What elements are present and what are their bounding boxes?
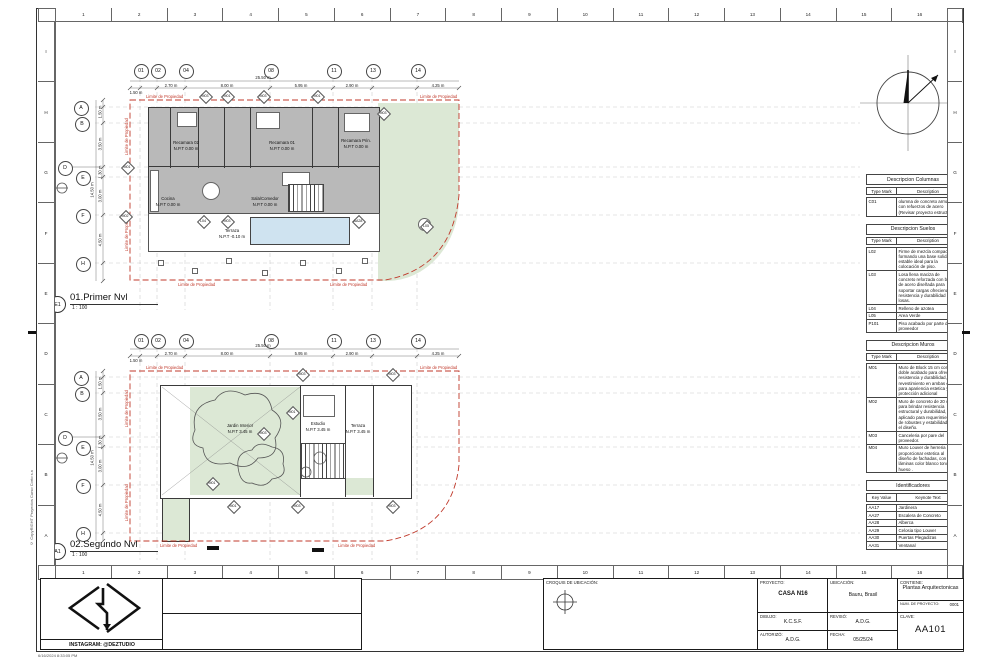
plan1-view-title: E1 01.Primer Nvl 1 : 100 <box>49 292 158 311</box>
ruler-cell: A <box>948 505 962 565</box>
grid-bubble: D <box>58 431 73 446</box>
dim-label: 8.00 m <box>221 351 234 356</box>
ruler-cell: 16 <box>891 8 947 21</box>
room-name: Recamara 02 <box>173 140 199 146</box>
grid-bubble: 13 <box>366 64 381 79</box>
contiene-box: CONTIENE: Plantas Arquitectonicas <box>897 578 964 602</box>
keynote-diamond: L04 <box>197 215 209 227</box>
dim-label: 3.00 m <box>98 190 103 203</box>
table-suelos: Descripcion Suelos Type MarkDescription … <box>866 224 960 333</box>
dim-label: 1.50 m <box>130 90 143 95</box>
room-label: Recamara 01 N.P.T 0.00 m <box>269 140 295 151</box>
keynote-diamond: M02 <box>119 210 131 222</box>
keynote-diamond: M01 <box>286 406 298 418</box>
ruler-cell: I <box>948 21 962 81</box>
copyright-text: © CopyRIGHT Proyectos Curso Corto s.n <box>29 470 34 546</box>
keynote-diamond: M03 <box>257 90 269 102</box>
location-crosshair-icon <box>552 589 578 615</box>
croquis-box: CROQUIS DE UBICACIÓN: <box>543 578 759 650</box>
dim-label: 2.90 m <box>346 351 359 356</box>
proyecto-label: PROYECTO: <box>758 579 828 585</box>
grid-bubble: F <box>76 209 91 224</box>
table-title: Descripcion Suelos <box>866 224 960 235</box>
table-title: Descripcion Columnas <box>866 174 960 185</box>
ruler-cell: 1 <box>55 8 111 21</box>
deztudio-logo-icon <box>57 582 147 634</box>
property-line-label: Limite de Propiedad <box>124 118 129 155</box>
dim-label: 4.25 m <box>432 351 445 356</box>
contiene-value: Plantas Arquitectonicas <box>898 585 963 591</box>
ruler-right: IHGFEDCBA <box>947 21 962 565</box>
dim-label: 1.30 m <box>98 436 103 449</box>
revision-box <box>162 578 362 650</box>
ruler-cell: 13 <box>724 8 780 21</box>
grid-bubble: H <box>76 257 91 272</box>
room-label: Cocina N.P.T 0.00 m <box>156 196 181 207</box>
clave-box: CLAVE: AA101 <box>897 612 964 650</box>
property-line-label: Limite de Propiedad <box>146 94 183 99</box>
grid-bubble: 14 <box>411 334 426 349</box>
dim-label: 1.50 m <box>98 106 103 119</box>
instagram-handle: INSTAGRAM: @DEZTUDIO <box>41 639 163 649</box>
grid-bubble: E <box>76 171 91 186</box>
keynote-diamond: M01 <box>227 500 239 512</box>
keynote-diamond: L05 <box>420 220 432 232</box>
table-title: Identificadores <box>866 480 960 491</box>
dibujo-box: DIBUJO: K.C.S.F. <box>757 612 829 632</box>
table-title: Descripcion Muros <box>866 340 960 351</box>
ruler-cell: I <box>38 21 54 81</box>
room-label: Jardin Interior N.P.T 3.45 m <box>227 423 253 434</box>
view-title-text: 01.Primer Nvl <box>70 292 158 303</box>
table-row: AA30Puertas Plegadizas <box>867 534 960 541</box>
reviso-value: A.D.G. <box>828 619 898 625</box>
drawing-sheet: 01 02 04 08 11 13 14 A B D E F H 1.50 m … <box>0 0 1000 667</box>
ubicacion-label: UBICACIÓN: <box>828 579 898 585</box>
col-header: Key Value <box>867 494 897 501</box>
dim-label: 14.50 m <box>90 182 95 197</box>
table-row: M04Muro Louver de herreria para proporci… <box>867 444 960 473</box>
table-columnas: Descripcion Columnas Type MarkDescriptio… <box>866 174 960 217</box>
keynote-diamond: M01 <box>121 161 133 173</box>
ruler-cell: 2 <box>111 8 167 21</box>
keynote-diamond: M03 <box>377 107 389 119</box>
ruler-cell: C <box>948 384 962 444</box>
keynote-diamond: M03 <box>291 500 303 512</box>
ruler-cell: G <box>948 142 962 202</box>
keynote-diamond: M01 <box>206 477 218 489</box>
num-label: NUM. DE PROYECTO: <box>898 601 939 606</box>
table-muros: Descripcion Muros Type MarkDescription M… <box>866 340 960 474</box>
table-row: L04Relleno de azotea <box>867 305 960 312</box>
ruler-cell: G <box>38 142 54 202</box>
room-name: Jardin Interior <box>227 423 253 429</box>
col-header: Type Mark <box>867 237 897 244</box>
room-name: Recamara 01 <box>269 140 295 146</box>
property-line-label: Limite de Propiedad <box>178 282 215 287</box>
dim-label: 25.50 m <box>255 75 270 80</box>
ruler-cell: H <box>38 81 54 141</box>
grid-bubble: 14 <box>411 64 426 79</box>
property-line-label: Limite de Propiedad <box>338 543 375 548</box>
dim-label: 3.50 m <box>98 138 103 151</box>
room-label: Sala/Comedor N.P.T 0.00 m <box>251 196 278 207</box>
keynote-diamond: M03 <box>386 368 398 380</box>
ruler-cell: B <box>38 444 54 504</box>
ruler-cell: 11 <box>613 8 669 21</box>
room-level: N.P.T -0.10 m <box>219 234 245 240</box>
room-label: Estudio N.P.T 3.45 m <box>306 421 331 432</box>
property-line-label: Limite de Propiedad <box>420 365 457 370</box>
property-line-label: Limite de Propiedad <box>330 282 367 287</box>
table-row: AA17Jardinera <box>867 504 960 511</box>
ruler-cell: A <box>38 505 54 565</box>
fecha-box: FECHA: 05/25/24 <box>827 630 899 650</box>
autorizo-box: AUTORIZÓ: A.D.G. <box>757 630 829 650</box>
grid-bubble: 04 <box>179 334 194 349</box>
col-header: Type Mark <box>867 353 897 360</box>
ruler-cell: 3 <box>167 8 223 21</box>
keynote-diamond: M03 <box>221 215 233 227</box>
table-row: L03Losa llena maciza de concreto reforza… <box>867 271 960 305</box>
ruler-cell: E <box>38 263 54 323</box>
dibujo-value: K.C.S.F. <box>758 619 828 625</box>
property-line-label: Limite de Propiedad <box>160 543 197 548</box>
table-row: M03Canceleria por pare del proveedor. <box>867 432 960 445</box>
table-row: AA27Escalera de Concreto <box>867 512 960 519</box>
ruler-cell: 7 <box>390 8 446 21</box>
grid-bubble: F <box>76 479 91 494</box>
grid-bubble: 01 <box>134 334 149 349</box>
ubicacion-value: Bauru, Brasil <box>828 592 898 598</box>
reviso-box: REVISÓ: A.D.G. <box>827 612 899 632</box>
view-title-text: 02.Segundo Nvl <box>70 539 158 550</box>
divider <box>163 613 361 614</box>
table-row: M02Muro de concreto de 20 cms para brind… <box>867 398 960 432</box>
grid-bubble: E <box>76 441 91 456</box>
fecha-value: 05/25/24 <box>828 637 898 643</box>
dim-label: 2.70 m <box>165 351 178 356</box>
proyecto-value: CASA N16 <box>758 591 828 597</box>
dim-label: 25.50 m <box>255 343 270 348</box>
grid-bubble: D <box>58 161 73 176</box>
ruler-cell: 8 <box>445 8 501 21</box>
ruler-cell: H <box>948 81 962 141</box>
table-row: AA31Ventanal <box>867 542 960 549</box>
room-label: Terraza N.P.T 3.45 m <box>346 423 371 434</box>
grid-bubble: 04 <box>179 64 194 79</box>
ubicacion-box: UBICACIÓN: Bauru, Brasil <box>827 578 899 614</box>
room-label: Terraza N.P.T -0.10 m <box>219 228 245 239</box>
table-row: M01Muro de Block 15 cm con doble acabado… <box>867 364 960 398</box>
ruler-cell: 5 <box>278 8 334 21</box>
dim-label: 3.50 m <box>98 408 103 421</box>
property-line-label: Limite de Propiedad <box>124 390 129 427</box>
keynote-diamond: M01 <box>221 90 233 102</box>
room-level: N.P.T 0.00 m <box>341 144 371 150</box>
table-row: P101Piso acabado por parte de proveedor <box>867 320 960 333</box>
logo-box: INSTAGRAM: @DEZTUDIO <box>40 578 164 650</box>
schedule-tables-column: Descripcion Columnas Type MarkDescriptio… <box>866 174 960 557</box>
keynote-diamond: M03 <box>386 500 398 512</box>
room-level: N.P.T 0.00 m <box>251 202 278 208</box>
ruler-cell: 8 <box>445 566 501 579</box>
registration-mark <box>962 331 970 334</box>
grid-bubble: 02 <box>151 334 166 349</box>
dim-label: 3.00 m <box>98 460 103 473</box>
proyecto-box: PROYECTO: CASA N16 <box>757 578 829 614</box>
dim-label: 2.90 m <box>346 83 359 88</box>
grid-bubble: 01 <box>134 64 149 79</box>
ruler-cell: 4 <box>222 8 278 21</box>
grid-bubble: 11 <box>327 64 342 79</box>
room-label: Recamara 02 N.P.T 0.00 m <box>173 140 199 151</box>
view-scale: 1 : 100 <box>72 305 158 311</box>
room-level: N.P.T 0.00 m <box>156 202 181 208</box>
ruler-cell: E <box>948 263 962 323</box>
grid-bubble: A <box>74 371 89 386</box>
dim-label: 5.95 m <box>295 351 308 356</box>
ruler-cell: F <box>948 202 962 262</box>
room-level: N.P.T 0.00 m <box>269 146 295 152</box>
grid-bubble: B <box>75 117 90 132</box>
table-row: L05Area Verde <box>867 312 960 319</box>
dim-label: 1.50 m <box>98 377 103 390</box>
clave-label: CLAVE: <box>898 613 963 619</box>
view-scale: 1 : 100 <box>72 552 158 558</box>
dim-label: 5.95 m <box>295 83 308 88</box>
ruler-cell: C <box>38 384 54 444</box>
croquis-label: CROQUIS DE UBICACIÓN: <box>544 579 758 585</box>
room-label: Recamara Prin. N.P.T 0.00 m <box>341 138 371 149</box>
table-row: C01olumna de concreto armado con refuerz… <box>867 198 960 216</box>
ruler-cell: F <box>38 202 54 262</box>
room-level: N.P.T 3.45 m <box>346 429 371 435</box>
keynote-diamond: M03 <box>199 90 211 102</box>
room-level: N.P.T 0.00 m <box>173 146 199 152</box>
room-level: N.P.T 3.45 m <box>227 429 253 435</box>
property-line-label: Limite de Propiedad <box>124 484 129 521</box>
room-name: Sala/Comedor <box>251 196 278 202</box>
clave-value: AA101 <box>898 624 963 635</box>
ruler-cell: B <box>948 444 962 504</box>
ruler-cell: 6 <box>334 8 390 21</box>
property-line-label: Limite de Propiedad <box>420 94 457 99</box>
ruler-cell: 14 <box>780 8 836 21</box>
ruler-cell: 12 <box>668 8 724 21</box>
print-timestamp: 6/16/2024 8:33:05 PM <box>38 653 77 658</box>
grid-bubble: 13 <box>366 334 381 349</box>
table-row: L02Firme de mezcla compactada, formando … <box>867 247 960 270</box>
table-row: AA29Celosia tipo Louver <box>867 527 960 534</box>
ruler-cell: 10 <box>557 8 613 21</box>
dim-label: 4.50 m <box>98 504 103 517</box>
dim-label: 4.50 m <box>98 234 103 247</box>
plan2-view-title: A1 02.Segundo Nvl 1 : 100 <box>49 539 158 558</box>
ruler-cell: D <box>38 323 54 383</box>
ruler-cell: 7 <box>390 566 446 579</box>
table-identificadores: Identificadores Key ValueKeynote Text AA… <box>866 480 960 549</box>
grid-bubble: 02 <box>151 64 166 79</box>
ruler-left: IHGFEDCBA <box>38 21 55 565</box>
ruler-cell: D <box>948 323 962 383</box>
ruler-cell: 15 <box>836 8 892 21</box>
dim-label: 2.70 m <box>165 83 178 88</box>
table-row: AA28Alberca <box>867 519 960 526</box>
grid-bubble: A <box>74 101 89 116</box>
dim-label: 4.25 m <box>432 83 445 88</box>
keynote-diamond: M01 <box>311 90 323 102</box>
num-value: 0001 <box>950 601 963 607</box>
north-arrow-icon <box>858 53 958 153</box>
property-line-label: Limite de Propiedad <box>146 365 183 370</box>
grid-bubble: B <box>75 387 90 402</box>
ruler-cell: 9 <box>501 8 557 21</box>
dim-label: 14.50 m <box>90 450 95 465</box>
dim-label: 1.30 m <box>98 166 103 179</box>
keynote-diamond: AA28 <box>352 215 364 227</box>
autorizo-value: A.D.G. <box>758 637 828 643</box>
dim-label: 8.00 m <box>221 83 234 88</box>
keynote-diamond: M03 <box>296 368 308 380</box>
registration-mark <box>28 331 36 334</box>
room-name: Recamara Prin. <box>341 138 371 144</box>
dim-label: 1.50 m <box>130 358 143 363</box>
col-header: Type Mark <box>867 188 897 195</box>
keynote-diamond: M03 <box>257 427 269 439</box>
room-level: N.P.T 3.45 m <box>306 427 331 433</box>
ruler-top: 12345678910111213141516 <box>55 8 947 22</box>
grid-bubble: 11 <box>327 334 342 349</box>
